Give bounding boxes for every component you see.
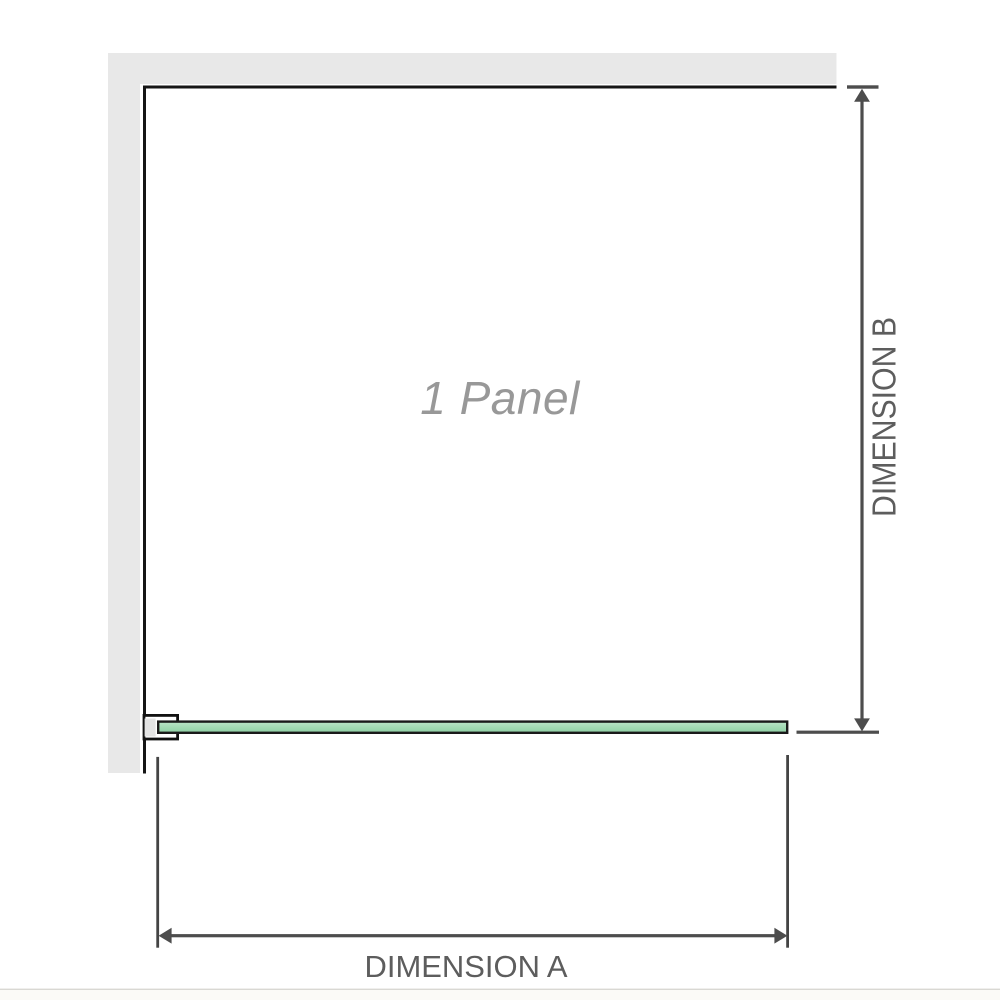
svg-text:DIMENSION B: DIMENSION B <box>866 317 903 517</box>
svg-text:1 Panel: 1 Panel <box>420 372 581 424</box>
svg-text:DIMENSION A: DIMENSION A <box>365 949 568 984</box>
